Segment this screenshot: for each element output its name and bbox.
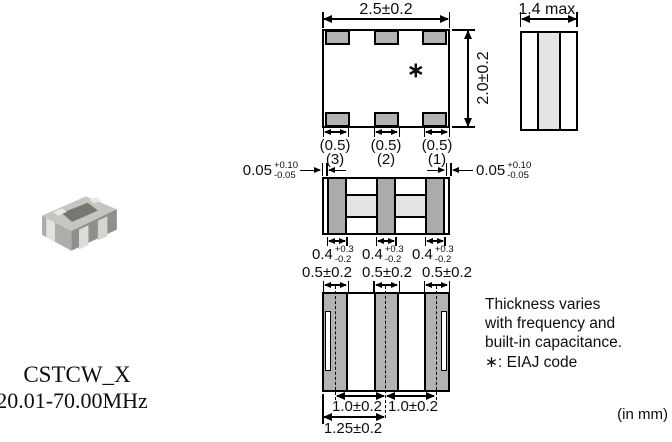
electrode-width-dim-line: [378, 240, 394, 242]
bottom-pad-width-dim-line: [376, 284, 397, 286]
electrode-width-dim-line: [427, 240, 443, 242]
bottom-pad-width-dim-line: [325, 284, 346, 286]
edge-gap-arrow: [427, 170, 444, 172]
terminal-number: (2): [377, 152, 395, 169]
terminal-pad: [422, 30, 447, 45]
edge-gap-dim-label: 0.05+0.10-0.05: [476, 161, 531, 180]
bottom-pad-width-label: 0.5±0.2: [422, 265, 472, 282]
bottom-pad-view: [322, 292, 450, 392]
extension-line: [446, 163, 448, 176]
top-width-dim-label: 2.5±0.2: [359, 1, 412, 19]
extension-line: [348, 281, 350, 292]
pitch-dim-line: [337, 395, 384, 397]
bottom-pad-width-label: 0.5±0.2: [362, 265, 412, 282]
element-film: [396, 194, 425, 218]
terminal-pad: [422, 112, 447, 127]
pad-width-dim-line: [426, 131, 447, 133]
edge-to-center-dim-line: [324, 416, 384, 418]
electrode-width-dim-line: [329, 240, 345, 242]
electrode-bar: [327, 179, 347, 233]
side-width-dim-line: [522, 18, 576, 20]
side-view-element-layer: [537, 33, 561, 129]
pitch-dim-label: 1.0±0.2: [388, 399, 438, 416]
part-number: CSTCW_X: [23, 362, 130, 388]
electrode-width-dim-label: 0.4+0.3-0.2: [312, 245, 354, 264]
extension-line: [449, 281, 451, 292]
extension-line: [348, 128, 350, 137]
extension-line: [449, 128, 451, 137]
extension-line: [399, 128, 401, 137]
eiaj-code-note-line: ∗: EIAJ code: [485, 353, 577, 372]
terminal-pad: [325, 112, 350, 127]
pad-width-dim-line: [325, 131, 346, 133]
top-height-dim-label: 2.0±0.2: [475, 51, 493, 104]
bottom-pad-width-dim-line: [426, 284, 447, 286]
solder-pad: [374, 294, 399, 390]
pad-width-dim-line: [376, 131, 397, 133]
centerline: [436, 286, 437, 400]
component-photo: [36, 190, 122, 254]
thickness-note-line: with frequency and: [485, 315, 615, 333]
edge-gap-arrow: [300, 170, 320, 172]
edge-gap-dim-label: 0.05+0.10-0.05: [243, 161, 298, 180]
side-view: [520, 31, 578, 131]
electrode-bar: [425, 179, 445, 233]
pitch-dim-label: 1.0±0.2: [332, 399, 382, 416]
thickness-note-line: built-in capacitance.: [485, 334, 622, 352]
edge-gap-arrow: [453, 170, 473, 172]
pitch-dim-line: [387, 395, 434, 397]
centerline: [335, 286, 336, 400]
thickness-note-line: Thickness varies: [485, 296, 600, 314]
frequency-range: 20.01-70.00MHz: [0, 388, 148, 414]
extension-line: [399, 281, 401, 292]
bottom-pad-width-label: 0.5±0.2: [302, 265, 352, 282]
eiaj-code-mark: ∗: [407, 59, 425, 82]
edge-to-center-dim-label: 1.25±0.2: [324, 421, 382, 438]
terminal-pad: [374, 30, 399, 45]
extension-line: [322, 163, 324, 176]
top-width-dim-line: [324, 18, 448, 20]
electrode-view: [322, 177, 450, 235]
terminal-pad: [325, 30, 350, 45]
terminal-pad: [374, 112, 399, 127]
units-note: (in mm): [617, 407, 668, 424]
top-height-dim-line: [467, 31, 469, 126]
element-film: [347, 194, 376, 218]
castellation-notch: [441, 311, 447, 371]
castellation-notch: [325, 311, 331, 371]
electrode-width-dim-label: 0.4+0.3-0.2: [362, 245, 404, 264]
dimension-drawing: CSTCW_X 20.01-70.00MHz 2.5±0.2 ∗ 2.0±0.2…: [0, 0, 672, 442]
electrode-width-dim-label: 0.4+0.3-0.2: [412, 245, 454, 264]
electrode-bar: [376, 179, 396, 233]
top-view: ∗: [322, 29, 450, 128]
edge-gap-arrow: [329, 170, 346, 172]
